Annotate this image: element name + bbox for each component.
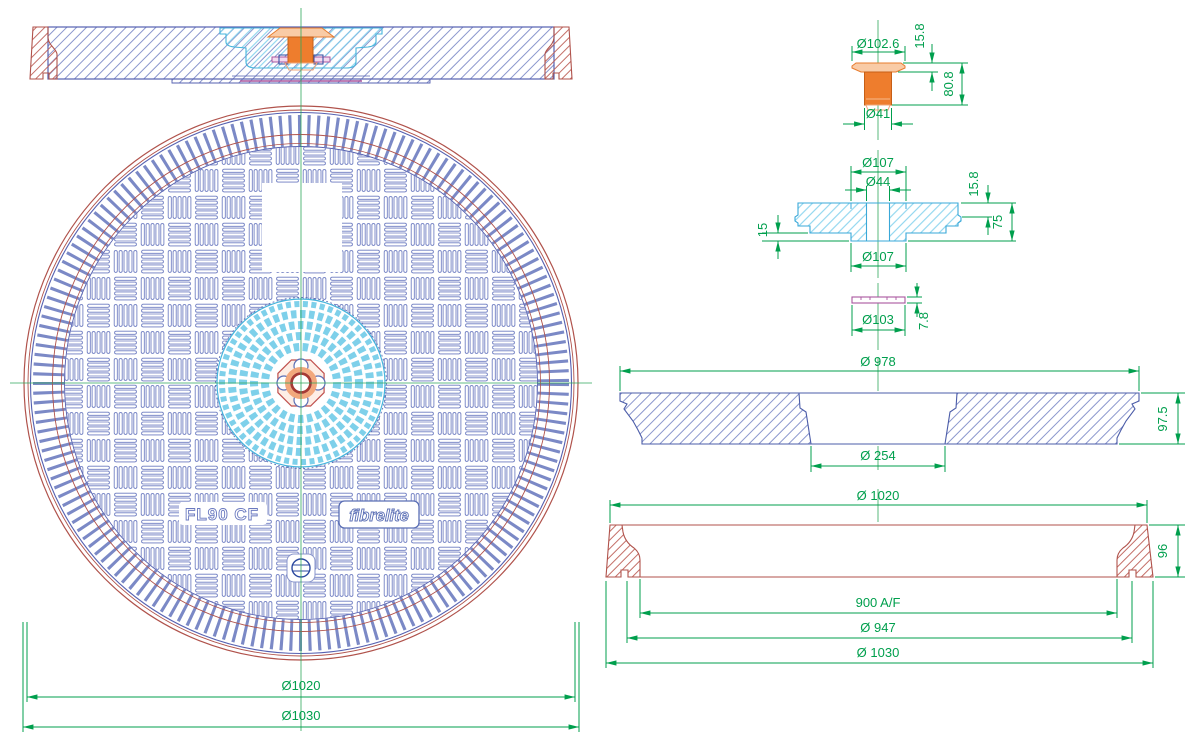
blank-recess	[262, 183, 342, 272]
dim-insert-bottom-dia: Ø107	[862, 249, 894, 264]
detail-bolt: Ø102.6 15.8 80.8 Ø41	[843, 23, 968, 130]
dim-frame-height: 96	[1155, 544, 1170, 558]
brand-logo: fibrelite	[349, 507, 409, 525]
dim-washer-thickness: 7.8	[916, 312, 931, 330]
dim-cover-opening: Ø 254	[860, 448, 895, 463]
bolt-cap	[852, 63, 905, 72]
product-label: FL90 CF	[185, 505, 259, 524]
drawing-canvas: FL90 CF fibrelite Ø1020 Ø1030	[0, 0, 1200, 742]
washer-profile	[852, 297, 905, 303]
dim-insert-step-height: 15	[755, 223, 770, 237]
dim-frame-seat-dia: Ø 947	[860, 620, 895, 635]
dim-insert-total-height: 75	[990, 215, 1005, 229]
dim-insert-top-dia: Ø107	[862, 155, 894, 170]
dim-frame-base-dia: Ø 1030	[857, 645, 900, 660]
bolt-stem-section	[288, 37, 313, 63]
dim-frame-af: 900 A/F	[856, 595, 901, 610]
frame-profile-left	[606, 525, 640, 577]
dim-plan-frame-dia: Ø1030	[281, 708, 320, 723]
bolt-stem	[865, 72, 892, 105]
engineering-drawing: FL90 CF fibrelite Ø1020 Ø1030	[0, 0, 1200, 742]
dim-bolt-total-height: 80.8	[941, 71, 956, 96]
plan-view: FL90 CF fibrelite Ø1020 Ø1030	[10, 8, 592, 732]
dim-cover-dia: Ø 978	[860, 354, 895, 369]
dim-washer-dia: Ø103	[862, 312, 894, 327]
dim-bolt-cap-dia: Ø102.6	[857, 36, 900, 51]
dim-insert-lip-height: 15.8	[966, 171, 981, 196]
detail-insert: Ø107 Ø44 15.8 75 15 Ø107	[755, 155, 1016, 272]
dim-bolt-stem-dia: Ø41	[866, 106, 891, 121]
section-frame: Ø 1020 96 900 A/F Ø 947 Ø 1030	[606, 488, 1185, 668]
section-cover: Ø 978 97.5 Ø 254	[620, 354, 1185, 472]
dim-frame-top-dia: Ø 1020	[857, 488, 900, 503]
cover-profile	[620, 393, 1139, 444]
frame-profile-right	[1117, 525, 1153, 577]
detail-washer: 7.8 Ø103	[852, 283, 931, 336]
dim-plan-cover-dia: Ø1020	[281, 678, 320, 693]
dim-insert-hole-dia: Ø44	[866, 174, 891, 189]
dim-bolt-cap-height: 15.8	[912, 23, 927, 48]
dim-cover-height: 97.5	[1155, 406, 1170, 431]
